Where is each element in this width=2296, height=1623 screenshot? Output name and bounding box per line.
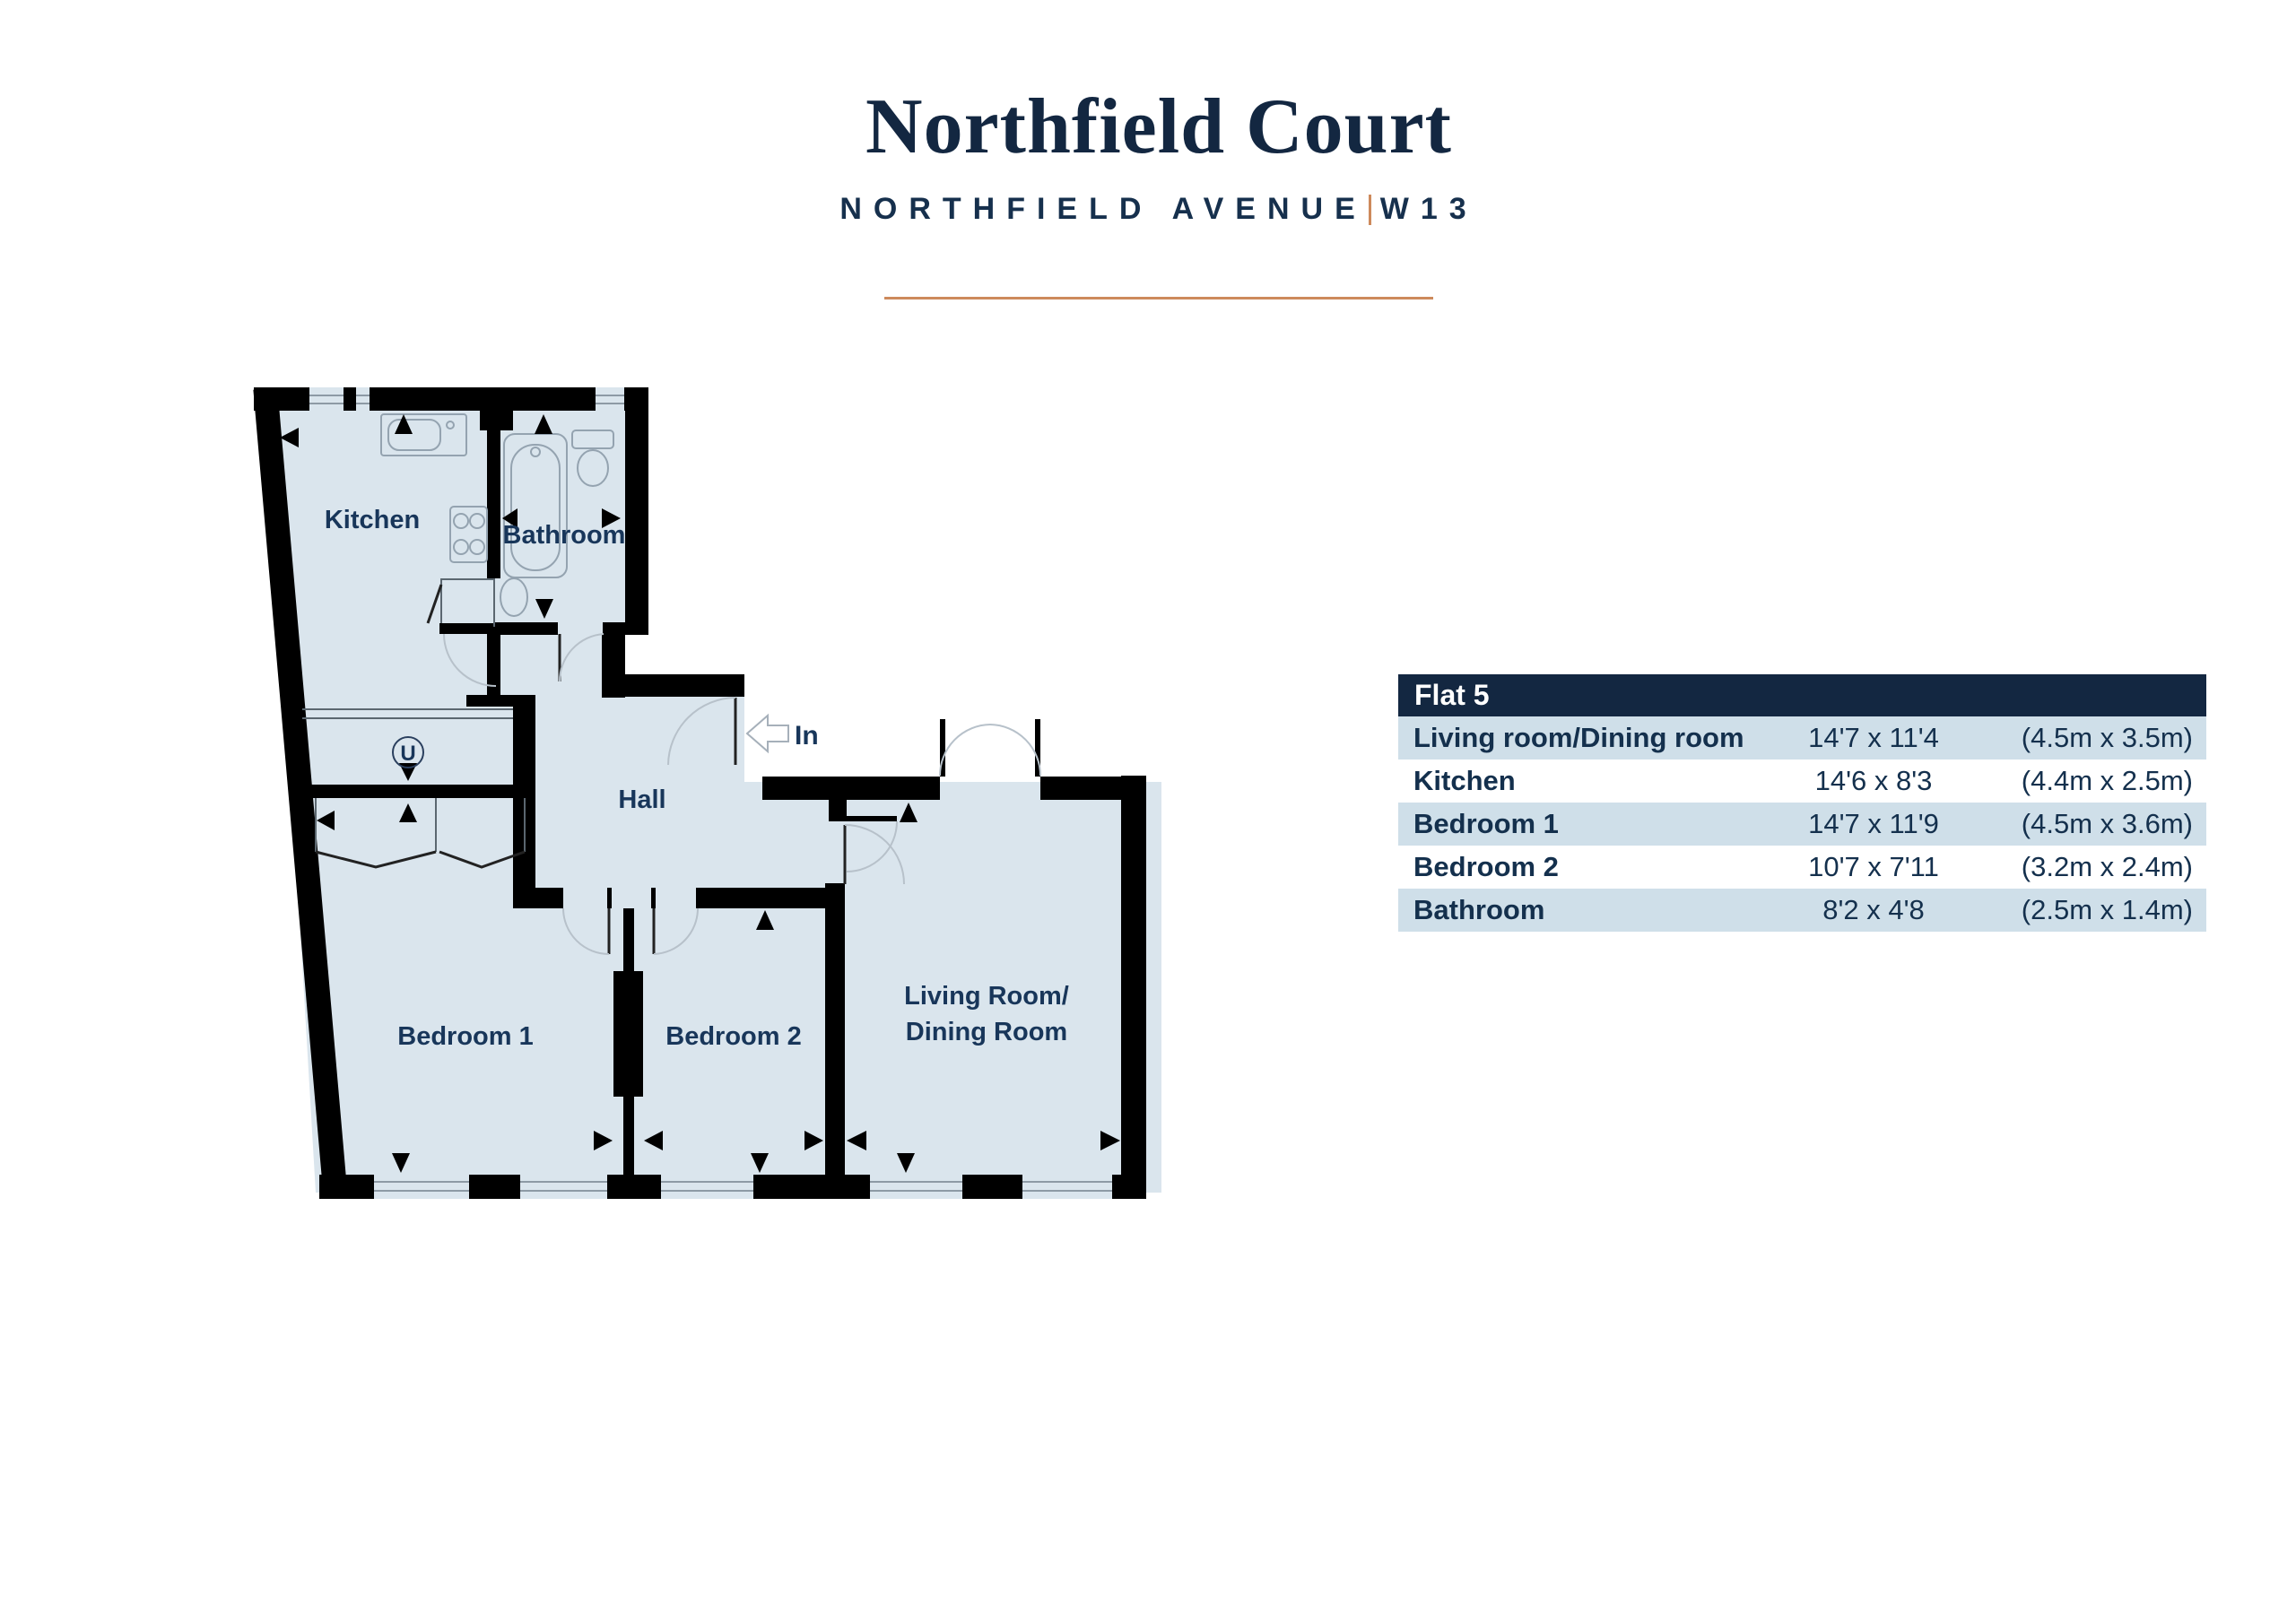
room-label-bedroom2: Bedroom 2 [665,1022,801,1051]
page-title: Northfield Court [800,86,1518,169]
french-door [940,725,990,776]
dimensions-table: Flat 5 Living room/Dining room 14'7 x 11… [1398,674,2206,932]
table-row: Bedroom 1 14'7 x 11'9 (4.5m x 3.6m) [1398,803,2206,846]
floorplan: Kitchen Bathroom Hall Bedroom 1 Bedroom … [242,381,1184,1211]
room-imperial: 14'6 x 8'3 [1757,765,1990,797]
room-metric: (3.2m x 2.4m) [1990,851,2206,883]
table-row: Kitchen 14'6 x 8'3 (4.4m x 2.5m) [1398,759,2206,803]
room-metric: (4.5m x 3.6m) [1990,808,2206,840]
header-rule [884,297,1433,299]
room-label-kitchen: Kitchen [325,506,420,534]
room-label-living-line2: Dining Room [906,1018,1067,1046]
room-name: Bedroom 2 [1398,851,1757,883]
room-imperial: 8'2 x 4'8 [1757,894,1990,926]
room-imperial: 10'7 x 7'11 [1757,851,1990,883]
entrance-label: In [795,721,819,751]
room-label-utility: U [400,742,415,766]
room-metric: (4.4m x 2.5m) [1990,765,2206,797]
entrance-arrow-icon [747,716,788,751]
subtitle-street: NORTHFIELD AVENUE [839,192,1366,227]
header: Northfield Court NORTHFIELD AVENUE W13 [800,86,1518,227]
room-name: Bathroom [1398,894,1757,926]
room-name: Bedroom 1 [1398,808,1757,840]
room-metric: (2.5m x 1.4m) [1990,894,2206,926]
table-row: Bathroom 8'2 x 4'8 (2.5m x 1.4m) [1398,889,2206,932]
table-row: Living room/Dining room 14'7 x 11'4 (4.5… [1398,716,2206,759]
room-name: Kitchen [1398,765,1757,797]
room-label-bathroom: Bathroom [503,521,626,550]
subtitle: NORTHFIELD AVENUE W13 [800,192,1518,227]
room-imperial: 14'7 x 11'9 [1757,808,1990,840]
table-body: Living room/Dining room 14'7 x 11'4 (4.5… [1398,716,2206,932]
subtitle-postcode: W13 [1380,192,1478,227]
table-title: Flat 5 [1398,674,2206,716]
page: Northfield Court NORTHFIELD AVENUE W13 [0,0,2296,1623]
subtitle-divider [1369,195,1371,225]
room-label-bedroom1: Bedroom 1 [397,1022,533,1051]
room-label-living-line1: Living Room/ [904,982,1069,1011]
room-label-hall: Hall [618,785,665,814]
room-imperial: 14'7 x 11'4 [1757,722,1990,754]
room-metric: (4.5m x 3.5m) [1990,722,2206,754]
table-row: Bedroom 2 10'7 x 7'11 (3.2m x 2.4m) [1398,846,2206,889]
room-name: Living room/Dining room [1398,722,1757,754]
